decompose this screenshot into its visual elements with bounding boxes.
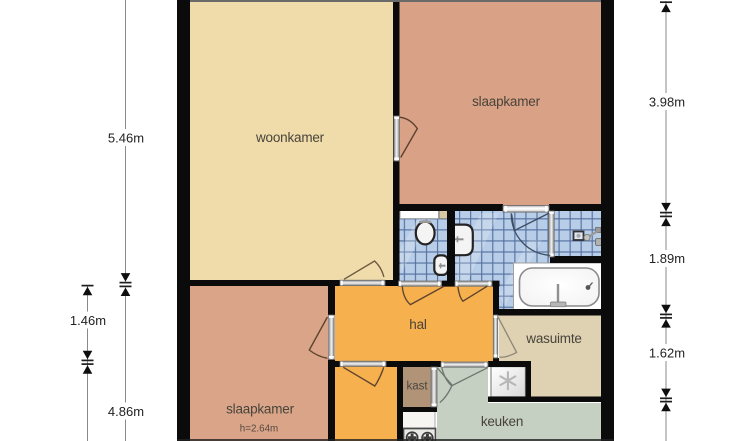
svg-text:1.89m: 1.89m	[649, 251, 685, 266]
svg-text:4.86m: 4.86m	[108, 404, 144, 419]
svg-text:h=2.64m: h=2.64m	[240, 424, 278, 435]
svg-text:slaapkamer: slaapkamer	[226, 402, 294, 417]
svg-text:wasuimte: wasuimte	[525, 331, 581, 346]
svg-text:1.62m: 1.62m	[649, 346, 685, 361]
svg-text:woonkamer: woonkamer	[255, 130, 325, 145]
svg-text:3.98m: 3.98m	[649, 95, 685, 110]
svg-text:5.46m: 5.46m	[108, 131, 144, 146]
svg-text:1.46m: 1.46m	[70, 313, 106, 328]
svg-text:keuken: keuken	[481, 414, 523, 429]
svg-text:slaapkamer: slaapkamer	[472, 94, 540, 109]
svg-text:hal: hal	[409, 317, 427, 332]
svg-text:kast: kast	[406, 381, 428, 393]
